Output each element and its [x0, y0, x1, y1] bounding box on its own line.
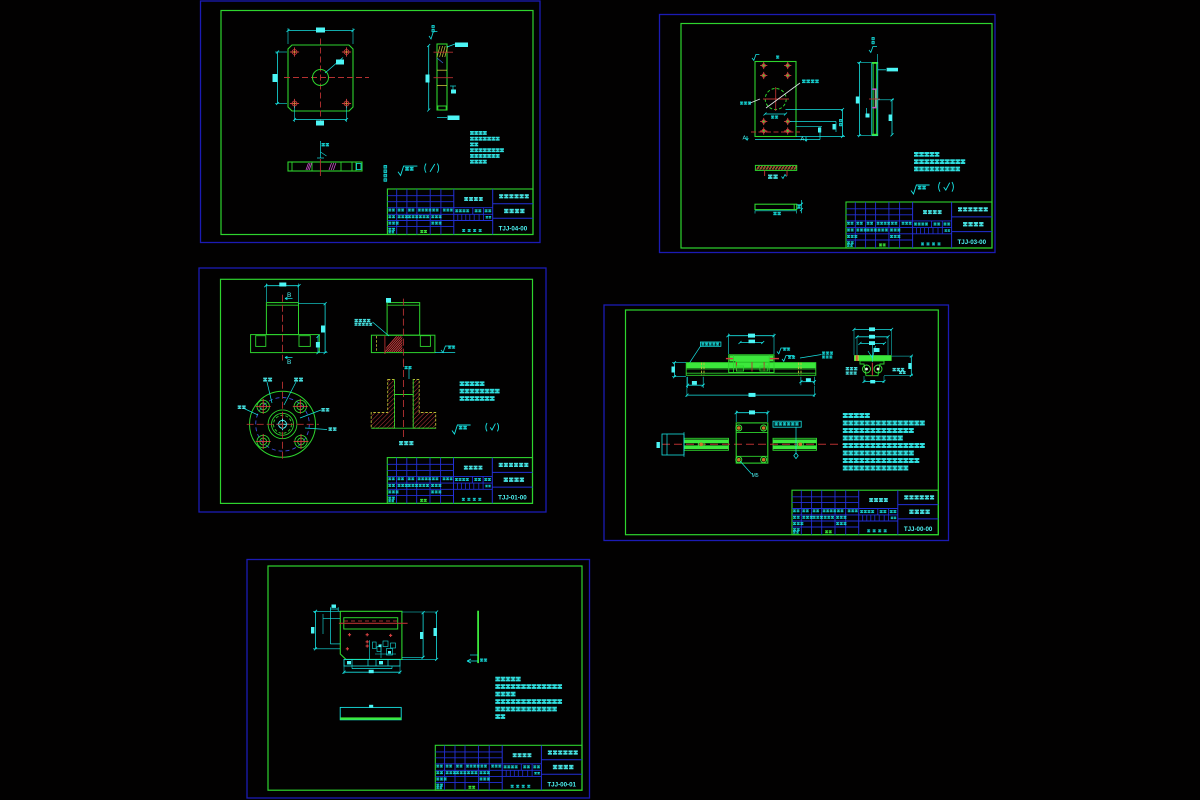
svg-text:TJJ-01-00: TJJ-01-00 [498, 494, 527, 501]
svg-text:TJJ-03-00: TJJ-03-00 [958, 239, 987, 246]
svg-text:TJJ-04-00: TJJ-04-00 [499, 226, 528, 233]
svg-text:TJJ-00-01: TJJ-00-01 [547, 781, 576, 788]
svg-text:TJJ-00-00: TJJ-00-00 [904, 526, 933, 533]
svg-text:A: A [801, 137, 805, 143]
svg-text:M5: M5 [752, 473, 759, 479]
svg-text:B: B [287, 359, 291, 366]
svg-text:B: B [287, 292, 291, 299]
